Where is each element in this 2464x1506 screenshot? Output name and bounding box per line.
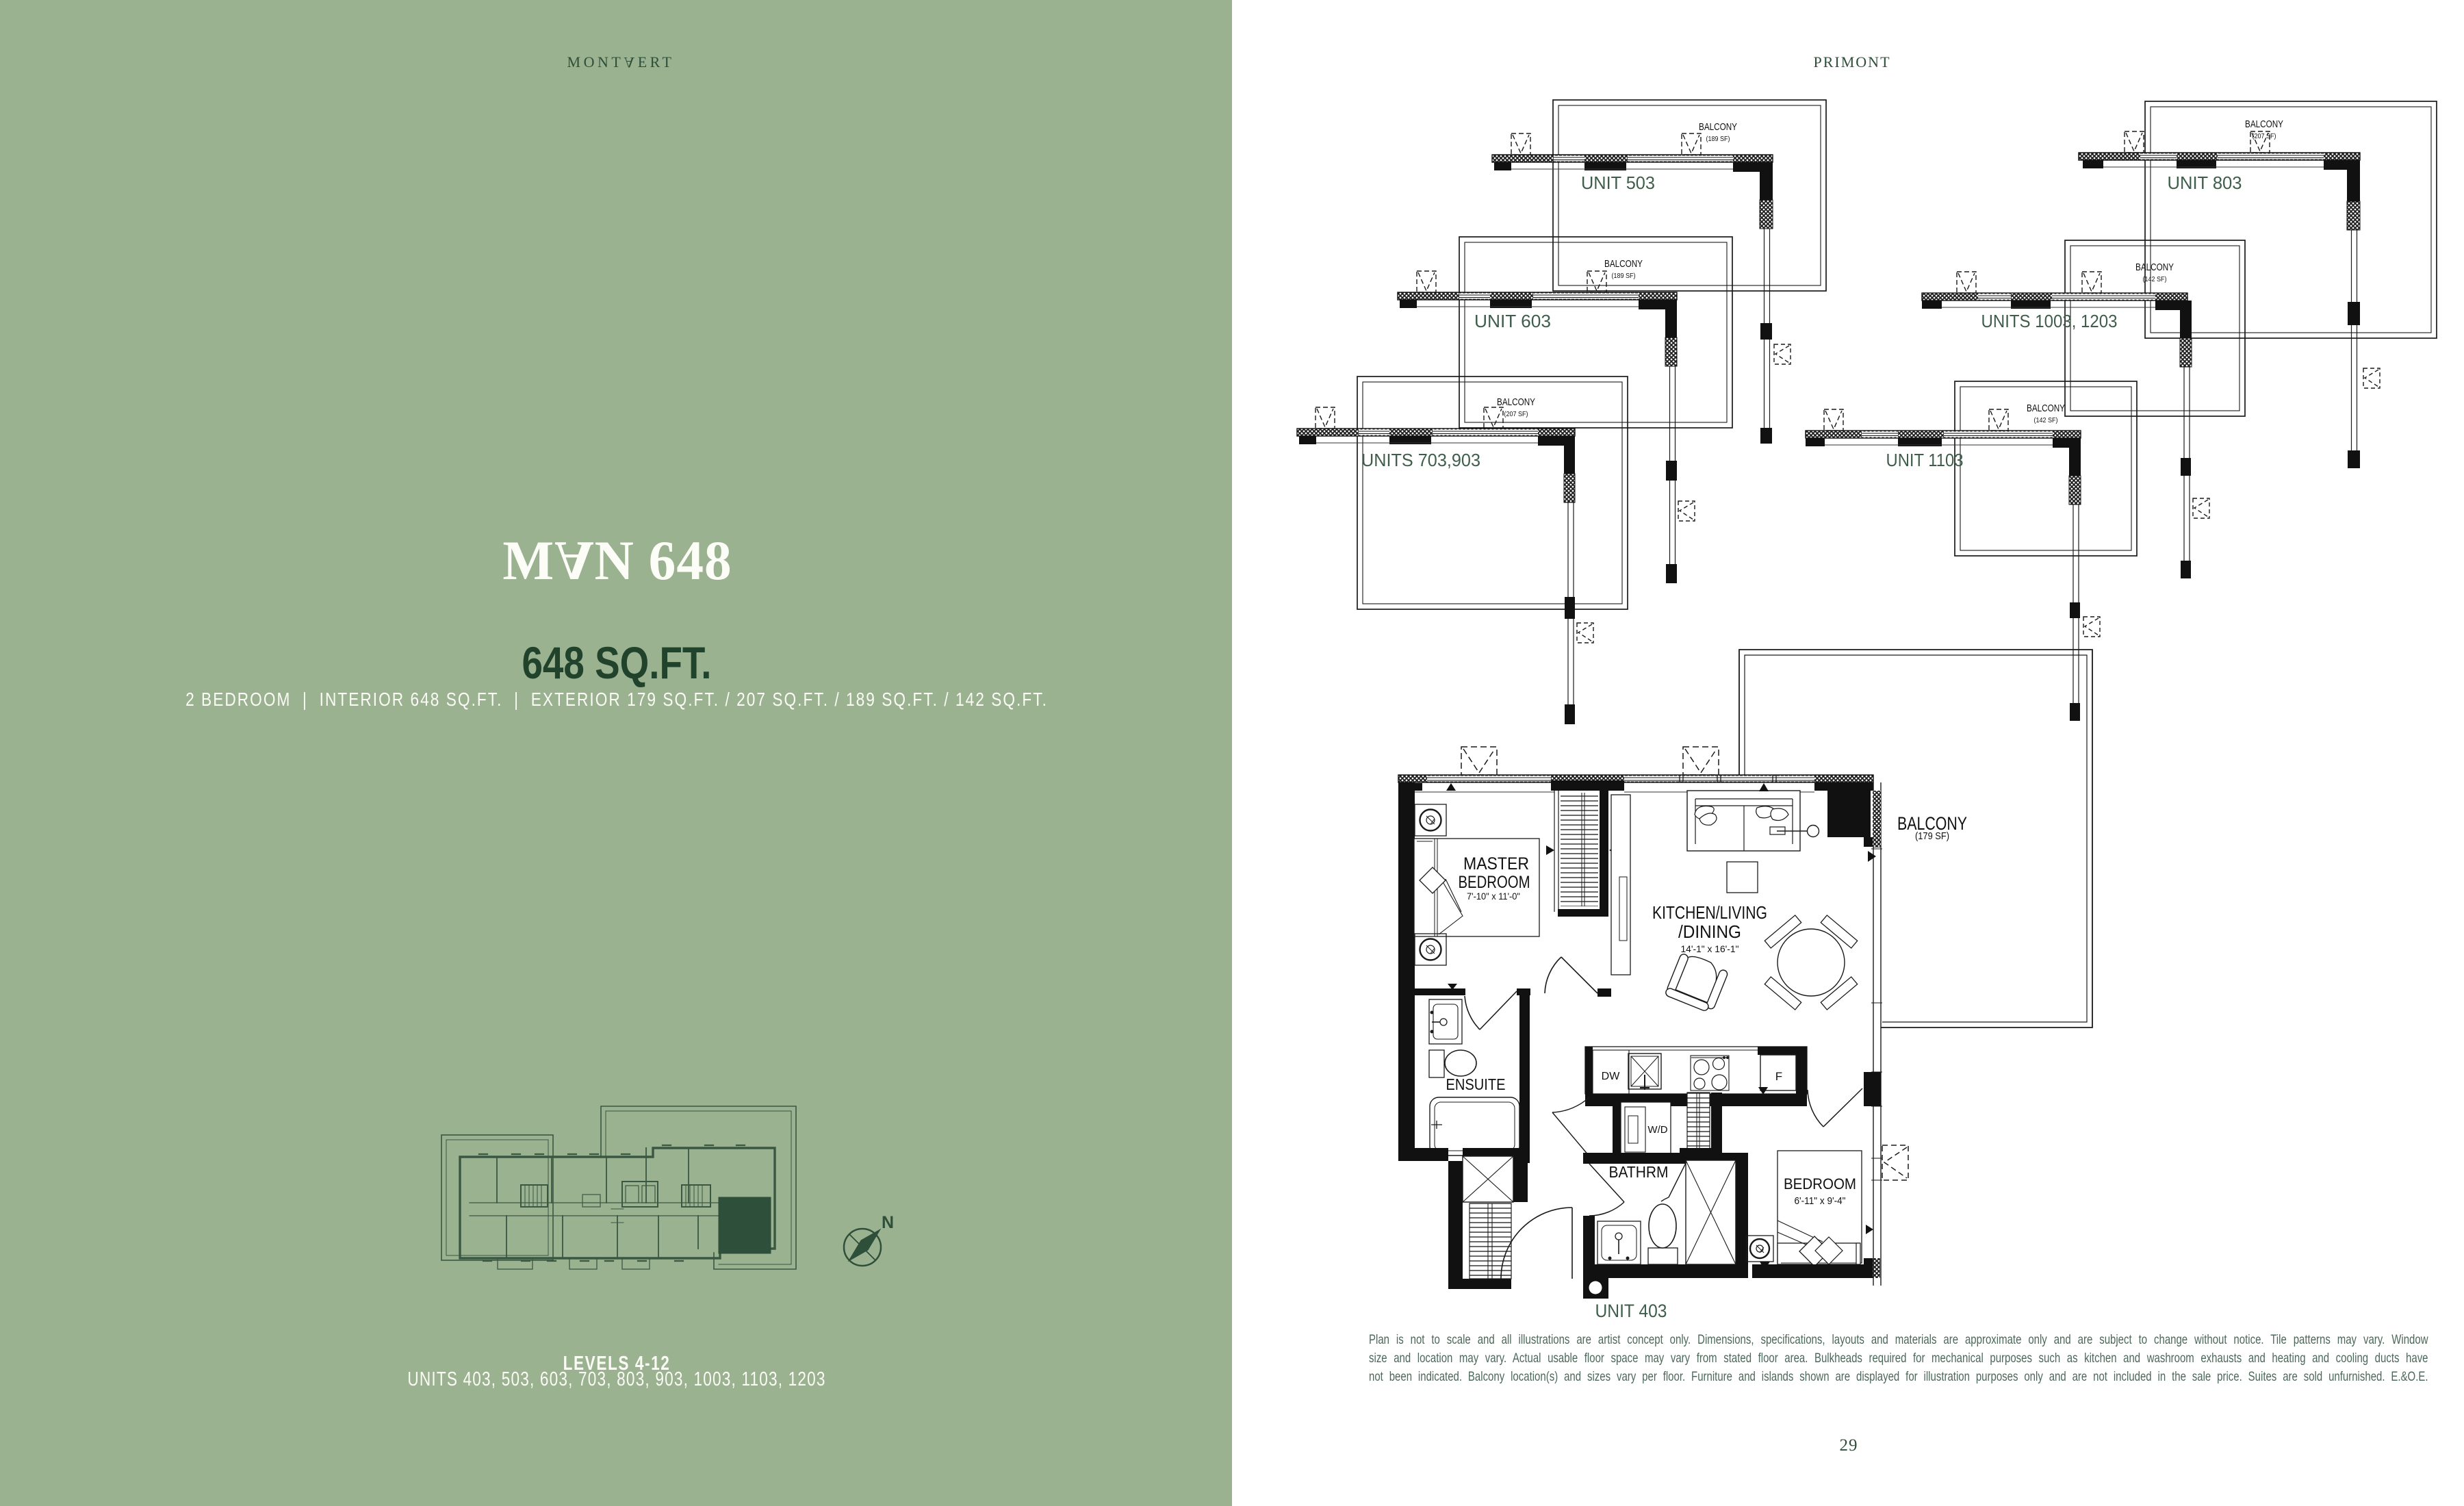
svg-text:(189 SF): (189 SF) [1612, 272, 1636, 280]
svg-text:ENSUITE: ENSUITE [1446, 1075, 1506, 1093]
svg-text:BEDROOM: BEDROOM [1784, 1175, 1856, 1192]
svg-text:DW: DW [1602, 1071, 1621, 1082]
svg-text:(142 SF): (142 SF) [2143, 275, 2167, 283]
svg-text:14'-1" x 16'-1": 14'-1" x 16'-1" [1681, 943, 1739, 954]
svg-text:(207 SF): (207 SF) [2253, 132, 2276, 140]
svg-text:(189 SF): (189 SF) [1706, 135, 1730, 143]
svg-text:F: F [1775, 1070, 1782, 1083]
svg-text:BALCONY: BALCONY [2027, 403, 2065, 414]
svg-text:BALCONY: BALCONY [1699, 121, 1737, 133]
svg-text:/DINING: /DINING [1678, 921, 1741, 942]
svg-text:UNIT 603: UNIT 603 [1474, 311, 1551, 331]
svg-text:UNIT 403: UNIT 403 [1595, 1301, 1667, 1321]
svg-text:BALCONY: BALCONY [1604, 258, 1643, 270]
svg-text:(179 SF): (179 SF) [1915, 830, 1949, 842]
svg-text:BALCONY: BALCONY [1497, 396, 1535, 408]
svg-text:BALCONY: BALCONY [2135, 261, 2174, 273]
svg-text:(207 SF): (207 SF) [1504, 410, 1528, 418]
svg-text:BEDROOM: BEDROOM [1459, 873, 1530, 892]
svg-text:BATHRM: BATHRM [1609, 1163, 1669, 1181]
svg-text:6'-11" x 9'-4": 6'-11" x 9'-4" [1795, 1195, 1846, 1207]
svg-text:UNITS 1003, 1203: UNITS 1003, 1203 [1981, 311, 2118, 331]
svg-text:MASTER: MASTER [1463, 854, 1529, 873]
svg-text:W/D: W/D [1647, 1124, 1667, 1136]
svg-text:UNIT 803: UNIT 803 [2168, 173, 2242, 193]
svg-text:UNIT 1103: UNIT 1103 [1886, 450, 1964, 470]
svg-text:UNITS 703,903: UNITS 703,903 [1361, 450, 1480, 470]
svg-text:7'-10" x 11'-0": 7'-10" x 11'-0" [1467, 891, 1520, 902]
svg-text:(142 SF): (142 SF) [2034, 416, 2058, 424]
svg-text:KITCHEN/LIVING: KITCHEN/LIVING [1652, 902, 1767, 923]
svg-text:BALCONY: BALCONY [2245, 118, 2283, 130]
svg-text:N: N [882, 1213, 894, 1232]
svg-text:UNIT 503: UNIT 503 [1581, 173, 1655, 193]
